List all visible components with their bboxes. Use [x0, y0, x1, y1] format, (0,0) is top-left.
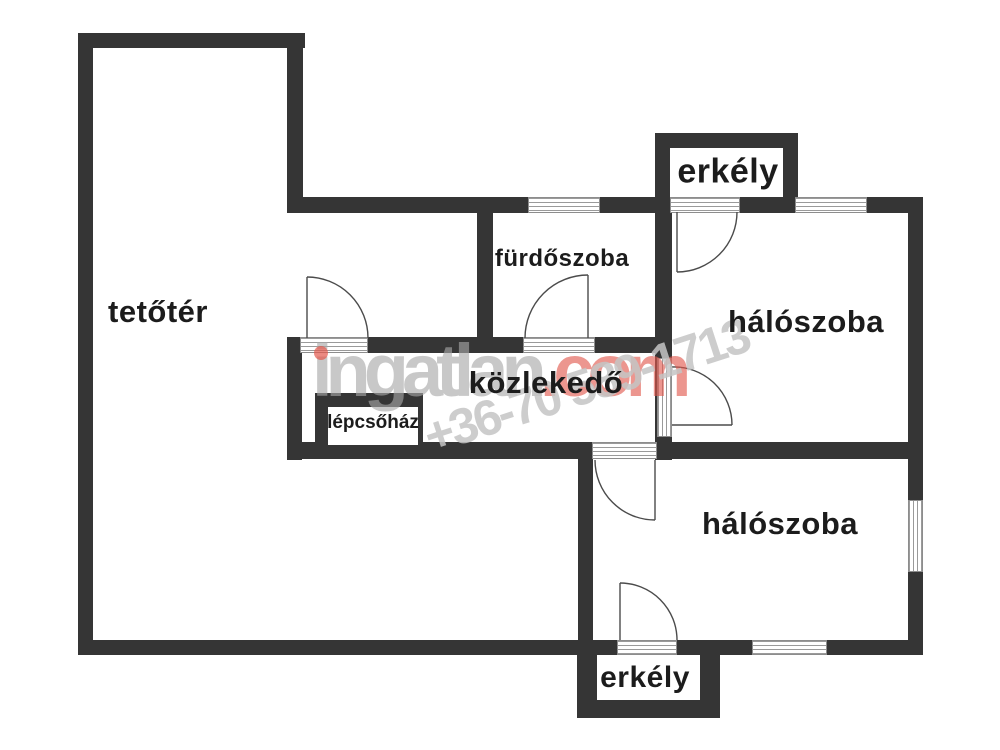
- room-label-tetoter: tetőtér: [108, 294, 208, 330]
- window-balcony-door: [670, 197, 740, 213]
- room-label-furdoszoba: fürdőszoba: [495, 245, 629, 273]
- door-threshold-bedroom2: [592, 442, 657, 459]
- floor-plan: tetőtér fürdőszoba erkély hálószoba közl…: [0, 0, 1000, 750]
- watermark-brand-dot-icon: [314, 346, 328, 360]
- room-label-haloszoba-bottom: hálószoba: [702, 506, 858, 542]
- wall-bedroom2-left: [578, 442, 593, 655]
- wall-outer-bottom-left: [78, 640, 617, 655]
- room-label-lepcsohaz: lépcsőház: [327, 412, 419, 434]
- window-bedroom2-right: [908, 500, 923, 572]
- wall-outer-left: [78, 33, 93, 655]
- room-label-kozlekedo: közlekedő: [469, 365, 623, 401]
- wall-tetoter-right: [287, 33, 303, 213]
- wall-tetoter-top: [78, 33, 305, 48]
- door-arc-balcony2: [620, 583, 677, 640]
- wall-outer-right: [908, 197, 923, 655]
- door-threshold-balcony2: [617, 640, 677, 655]
- wall-balcony-top: [655, 133, 798, 148]
- window-bedroom2-bottom: [752, 640, 827, 655]
- wall-mid-top: [287, 197, 657, 213]
- window-bathroom: [528, 197, 600, 213]
- window-bedroom1-top: [795, 197, 867, 213]
- room-label-erkely-top: erkély: [677, 153, 778, 192]
- wall-balcony2-bottom: [577, 700, 720, 718]
- door-arc-balcony1: [677, 212, 737, 272]
- door-arc-bedroom2: [595, 460, 655, 520]
- room-label-erkely-bottom: erkély: [600, 661, 690, 695]
- room-label-haloszoba-top: hálószoba: [728, 304, 884, 340]
